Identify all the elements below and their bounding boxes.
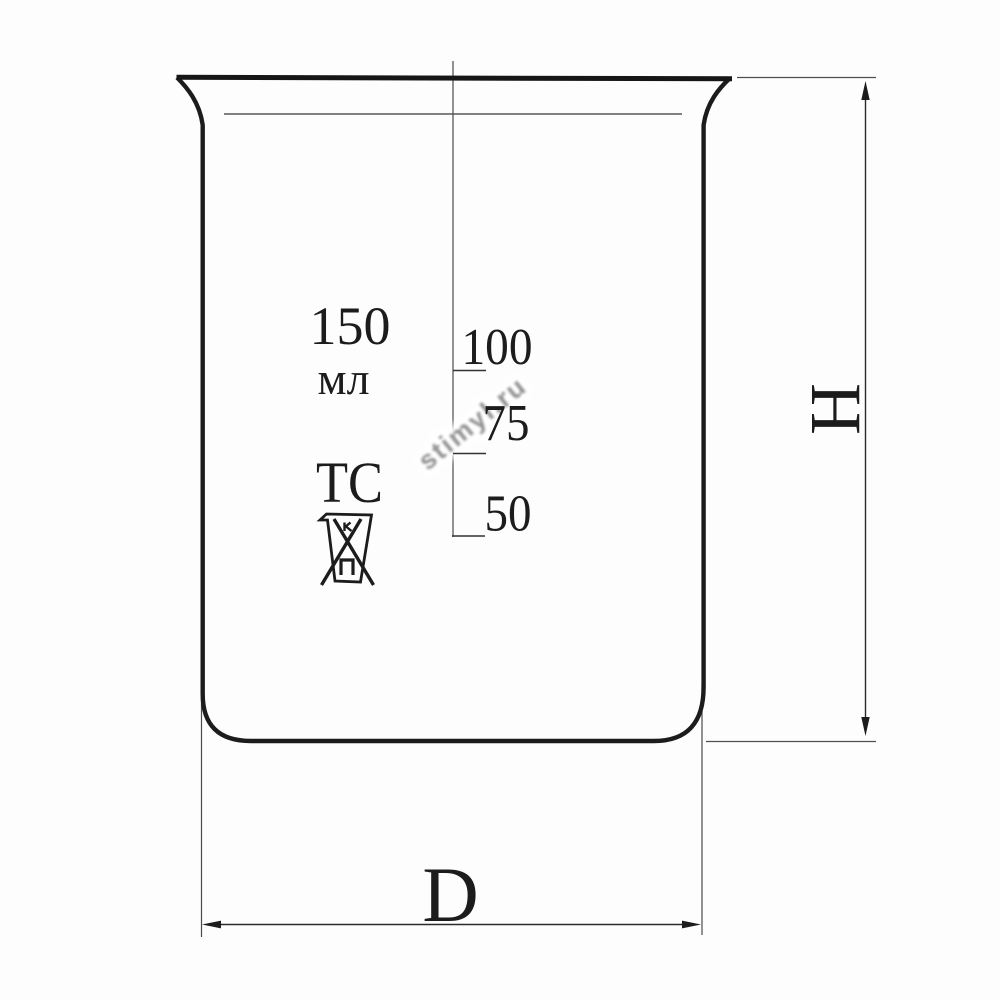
svg-text:мл: мл <box>317 353 369 404</box>
svg-text:ТС: ТС <box>316 450 383 515</box>
svg-text:D: D <box>422 851 478 938</box>
svg-text:75: 75 <box>483 395 530 452</box>
svg-text:100: 100 <box>462 319 533 376</box>
svg-text:50: 50 <box>485 486 532 543</box>
svg-text:H: H <box>795 383 875 435</box>
svg-text:150: 150 <box>310 296 391 356</box>
